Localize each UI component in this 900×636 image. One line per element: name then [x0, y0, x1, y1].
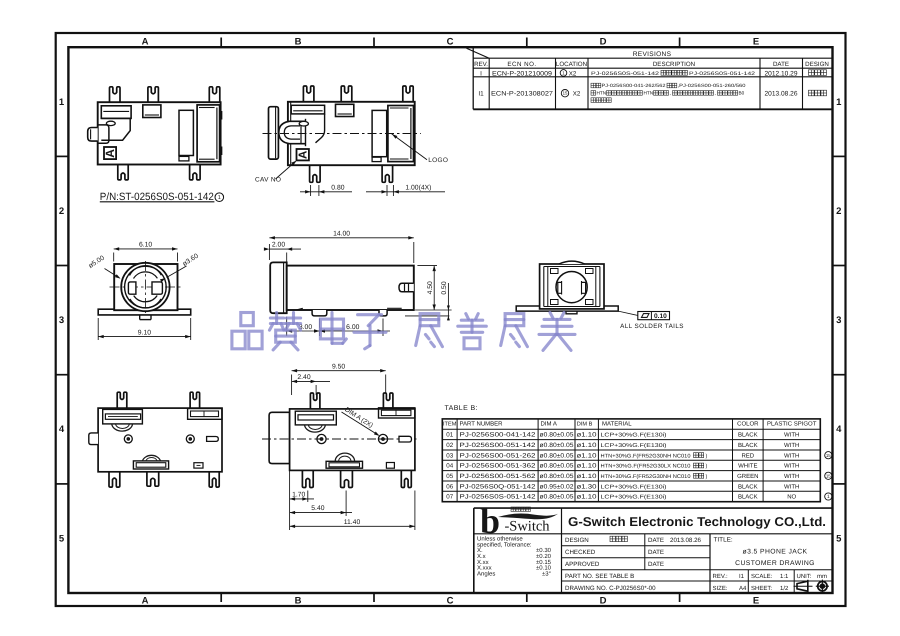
svg-text:ECN NO.: ECN NO. — [507, 61, 536, 68]
svg-text:E: E — [753, 37, 759, 48]
svg-text:PJ-0256S0S-051-142: PJ-0256S0S-051-142 — [689, 71, 755, 77]
svg-text:PJ-0256S0S-051-142: PJ-0256S0S-051-142 — [591, 71, 659, 77]
svg-text:MATERIAL: MATERIAL — [602, 421, 632, 428]
svg-text:HTN+30%G.F(FR52G30NH NC010: HTN+30%G.F(FR52G30NH NC010 — [601, 474, 691, 480]
svg-text:2013.08.26: 2013.08.26 — [670, 537, 702, 544]
svg-text:): ) — [706, 464, 708, 470]
svg-text:9.10: 9.10 — [138, 329, 151, 336]
svg-text:07: 07 — [446, 494, 453, 501]
svg-text:DATE: DATE — [648, 549, 664, 556]
svg-text:): ) — [706, 453, 708, 459]
svg-text:3: 3 — [59, 315, 64, 326]
svg-text:DRAWING NO. C-PJ0256S0*-00: DRAWING NO. C-PJ0256S0*-00 — [565, 585, 656, 592]
svg-text:ø0.95±0.02: ø0.95±0.02 — [540, 483, 575, 490]
svg-text:TITLE:: TITLE: — [714, 537, 733, 544]
svg-text:ø0.80±0.05: ø0.80±0.05 — [540, 452, 575, 459]
svg-text:D: D — [600, 596, 607, 607]
svg-text:b: b — [480, 501, 500, 541]
svg-text:D: D — [600, 37, 607, 48]
svg-text:E: E — [753, 596, 759, 607]
svg-text:I1: I1 — [739, 573, 745, 580]
svg-text:B: B — [295, 596, 302, 607]
svg-text:DIM A: DIM A — [541, 421, 557, 428]
svg-text:PART NO. SEE TABLE B: PART NO. SEE TABLE B — [565, 573, 634, 580]
svg-text:WITH: WITH — [784, 432, 799, 439]
svg-text:ø1.10: ø1.10 — [577, 494, 598, 501]
svg-text:A4: A4 — [739, 585, 747, 592]
svg-text:A: A — [298, 151, 310, 159]
svg-text:,: , — [670, 90, 671, 95]
svg-text:2012.10.29: 2012.10.29 — [764, 70, 797, 77]
svg-text:DATE: DATE — [648, 561, 664, 568]
svg-text:PJ-0256S00-051-362: PJ-0256S00-051-362 — [460, 463, 537, 470]
svg-text:1:1: 1:1 — [780, 573, 789, 580]
svg-text:2: 2 — [836, 206, 841, 217]
svg-text:3: 3 — [836, 315, 841, 326]
svg-text:COLOR: COLOR — [737, 421, 759, 428]
svg-text:2.00: 2.00 — [272, 242, 285, 249]
svg-text:mm: mm — [817, 574, 827, 580]
svg-text:ITEM: ITEM — [443, 422, 457, 428]
svg-text:specified, Tolerance:: specified, Tolerance: — [477, 541, 532, 548]
svg-text:LCP+30%G.F(E130i): LCP+30%G.F(E130i) — [601, 433, 667, 439]
svg-text:I1: I1 — [478, 91, 484, 98]
svg-text:PJ-0256S00-051-262: PJ-0256S00-051-262 — [460, 452, 537, 459]
svg-text:PART NUMBER: PART NUMBER — [460, 421, 504, 428]
svg-text:WHITE: WHITE — [738, 463, 757, 470]
svg-text:0.50: 0.50 — [441, 281, 448, 294]
svg-text:15: 15 — [826, 453, 831, 458]
svg-text:NO: NO — [787, 494, 796, 501]
svg-text:ø1.10: ø1.10 — [577, 432, 598, 439]
svg-text:ø1.10: ø1.10 — [577, 442, 598, 449]
svg-text:14.00: 14.00 — [333, 231, 350, 238]
svg-text:ø0.80±0.05: ø0.80±0.05 — [540, 473, 575, 480]
svg-text:1: 1 — [59, 97, 65, 108]
svg-text:ø0.80±0.05: ø0.80±0.05 — [540, 442, 575, 449]
svg-text:02: 02 — [446, 442, 453, 449]
svg-text:LCP+30%G.F(E130i): LCP+30%G.F(E130i) — [601, 443, 667, 449]
svg-text:06: 06 — [446, 483, 453, 490]
svg-text:1: 1 — [218, 195, 221, 201]
svg-text:4: 4 — [59, 424, 65, 435]
svg-text:ECN-P-201210009: ECN-P-201210009 — [492, 70, 552, 77]
svg-text:RED: RED — [741, 452, 754, 459]
svg-text:A: A — [142, 37, 149, 48]
svg-text:WITH: WITH — [784, 442, 799, 449]
svg-text:DESCRIPTION: DESCRIPTION — [653, 61, 695, 68]
svg-text:HTN+30%G.F(FR52G30NH NC010: HTN+30%G.F(FR52G30NH NC010 — [601, 453, 691, 459]
svg-text:DESIGN: DESIGN — [805, 61, 829, 68]
svg-text:WITH: WITH — [784, 483, 799, 490]
svg-text:1/2: 1/2 — [780, 585, 789, 592]
svg-text:WITH: WITH — [784, 463, 799, 470]
svg-text:): ) — [706, 474, 708, 480]
svg-text:I: I — [480, 70, 482, 77]
svg-text:A: A — [103, 149, 117, 158]
svg-text:15: 15 — [563, 91, 568, 96]
svg-text:05: 05 — [446, 473, 453, 480]
svg-text:HTN: HTN — [597, 90, 607, 95]
svg-text:BLACK: BLACK — [738, 442, 758, 449]
svg-text:PJ-0256S0S-051-142: PJ-0256S0S-051-142 — [460, 494, 537, 501]
svg-text:PJ-0256S00-051-562: PJ-0256S00-051-562 — [460, 473, 537, 480]
svg-text:P/N:ST-0256S0S-051-142: P/N:ST-0256S0S-051-142 — [100, 191, 214, 203]
svg-text:ø1.10: ø1.10 — [577, 452, 598, 459]
svg-text:X2: X2 — [569, 70, 577, 77]
svg-text:4.50: 4.50 — [427, 281, 434, 294]
svg-text:,: , — [715, 90, 716, 95]
svg-text:-Switch: -Switch — [504, 519, 550, 535]
svg-text:6.00: 6.00 — [346, 324, 359, 331]
svg-text:SCALE:: SCALE: — [751, 573, 773, 580]
svg-text:G-Switch Electronic Technology: G-Switch Electronic Technology CO.,Ltd. — [568, 514, 826, 529]
svg-text:WITH: WITH — [784, 452, 799, 459]
svg-text:ALL SOLDER TAILS: ALL SOLDER TAILS — [620, 323, 684, 330]
svg-text:TABLE B:: TABLE B: — [445, 405, 478, 412]
svg-text:CHECKED: CHECKED — [565, 549, 596, 556]
svg-text:DESIGN: DESIGN — [565, 537, 589, 544]
svg-text:REV.:: REV.: — [713, 573, 728, 580]
svg-text:BLACK: BLACK — [738, 483, 758, 490]
svg-text:PJ-0256S00-041-142: PJ-0256S00-041-142 — [460, 432, 537, 439]
svg-text:1.00(4X): 1.00(4X) — [405, 184, 431, 191]
svg-text:1.70: 1.70 — [292, 491, 305, 498]
svg-text:C: C — [447, 596, 454, 607]
svg-text:±3°: ±3° — [542, 570, 552, 577]
svg-text:BLACK: BLACK — [738, 494, 758, 501]
svg-text:Angles: Angles — [477, 570, 495, 577]
svg-text:ø1.30: ø1.30 — [577, 483, 598, 490]
svg-text:1: 1 — [836, 97, 842, 108]
svg-text:PLASTIC SPIGOT: PLASTIC SPIGOT — [767, 421, 817, 428]
svg-text:0.80: 0.80 — [331, 184, 344, 191]
svg-text:2.40: 2.40 — [297, 374, 310, 381]
svg-text:ø3.5 PHONE JACK: ø3.5 PHONE JACK — [743, 549, 808, 556]
svg-text:LCP+30%G.F(E130i): LCP+30%G.F(E130i) — [601, 495, 667, 501]
svg-text:6.10: 6.10 — [139, 242, 152, 249]
svg-text:5: 5 — [59, 533, 65, 544]
svg-text:LOCATION: LOCATION — [556, 61, 587, 68]
svg-text:HTN: HTN — [644, 90, 654, 95]
svg-text:ECN-P-201308027: ECN-P-201308027 — [491, 91, 554, 98]
svg-text:ø1.10: ø1.10 — [577, 463, 598, 470]
svg-text:CUSTOMER DRAWING: CUSTOMER DRAWING — [735, 560, 815, 567]
svg-text:ø0.80±0.05: ø0.80±0.05 — [540, 432, 575, 439]
svg-text:C: C — [447, 37, 454, 48]
svg-text:LOGO: LOGO — [428, 157, 448, 164]
svg-text:UNIT:: UNIT: — [797, 573, 812, 580]
svg-text:2: 2 — [59, 206, 64, 217]
svg-text:04: 04 — [446, 463, 453, 470]
svg-text:B: B — [295, 37, 302, 48]
svg-text:03: 03 — [446, 452, 453, 459]
svg-text:5.40: 5.40 — [311, 505, 324, 512]
svg-text:PJ-0256S0Q-051-142: PJ-0256S0Q-051-142 — [460, 483, 537, 490]
svg-text:DIM B: DIM B — [577, 422, 593, 428]
svg-text:DATE: DATE — [648, 537, 664, 544]
svg-text:B0: B0 — [739, 90, 745, 95]
svg-text:5: 5 — [836, 533, 842, 544]
svg-text:0.10: 0.10 — [654, 313, 667, 320]
svg-text:X2: X2 — [573, 91, 581, 98]
svg-text:A: A — [142, 596, 149, 607]
svg-text:4: 4 — [836, 424, 842, 435]
svg-text:GREEN: GREEN — [737, 473, 758, 480]
svg-text:1: 1 — [827, 494, 830, 500]
svg-text:01: 01 — [446, 432, 453, 439]
svg-text:SHEET:: SHEET: — [751, 585, 772, 592]
svg-text:WITH: WITH — [784, 473, 799, 480]
svg-text:9.50: 9.50 — [332, 364, 345, 371]
svg-text:ø1.10: ø1.10 — [577, 473, 598, 480]
svg-text:PJ-0256S00-041-262/562: PJ-0256S00-041-262/562 — [602, 83, 666, 88]
svg-text:LCP+30%G.F(E130i): LCP+30%G.F(E130i) — [601, 484, 667, 490]
svg-text:BLACK: BLACK — [738, 432, 758, 439]
svg-text:,PJ-0256S00-051-260/560: ,PJ-0256S00-051-260/560 — [678, 83, 746, 88]
svg-text:REV.: REV. — [474, 61, 488, 68]
svg-text:HTN+30%G.F(FR52G30LX NC010: HTN+30%G.F(FR52G30LX NC010 — [601, 464, 691, 470]
svg-text:2013.08.26: 2013.08.26 — [764, 91, 797, 98]
svg-text:ø0.80±0.05: ø0.80±0.05 — [540, 463, 575, 470]
svg-text:DATE: DATE — [773, 61, 789, 68]
svg-text:PJ-0256S00-051-142: PJ-0256S00-051-142 — [460, 442, 537, 449]
svg-text:ø0.80±0.05: ø0.80±0.05 — [540, 494, 575, 501]
svg-text:15: 15 — [826, 473, 831, 478]
svg-text:REVISIONS: REVISIONS — [633, 51, 672, 58]
svg-text:SIZE:: SIZE: — [713, 585, 728, 592]
svg-text:Unless otherwise: Unless otherwise — [477, 535, 523, 542]
svg-text:11.40: 11.40 — [344, 519, 361, 526]
svg-text:APPROVED: APPROVED — [565, 561, 600, 568]
